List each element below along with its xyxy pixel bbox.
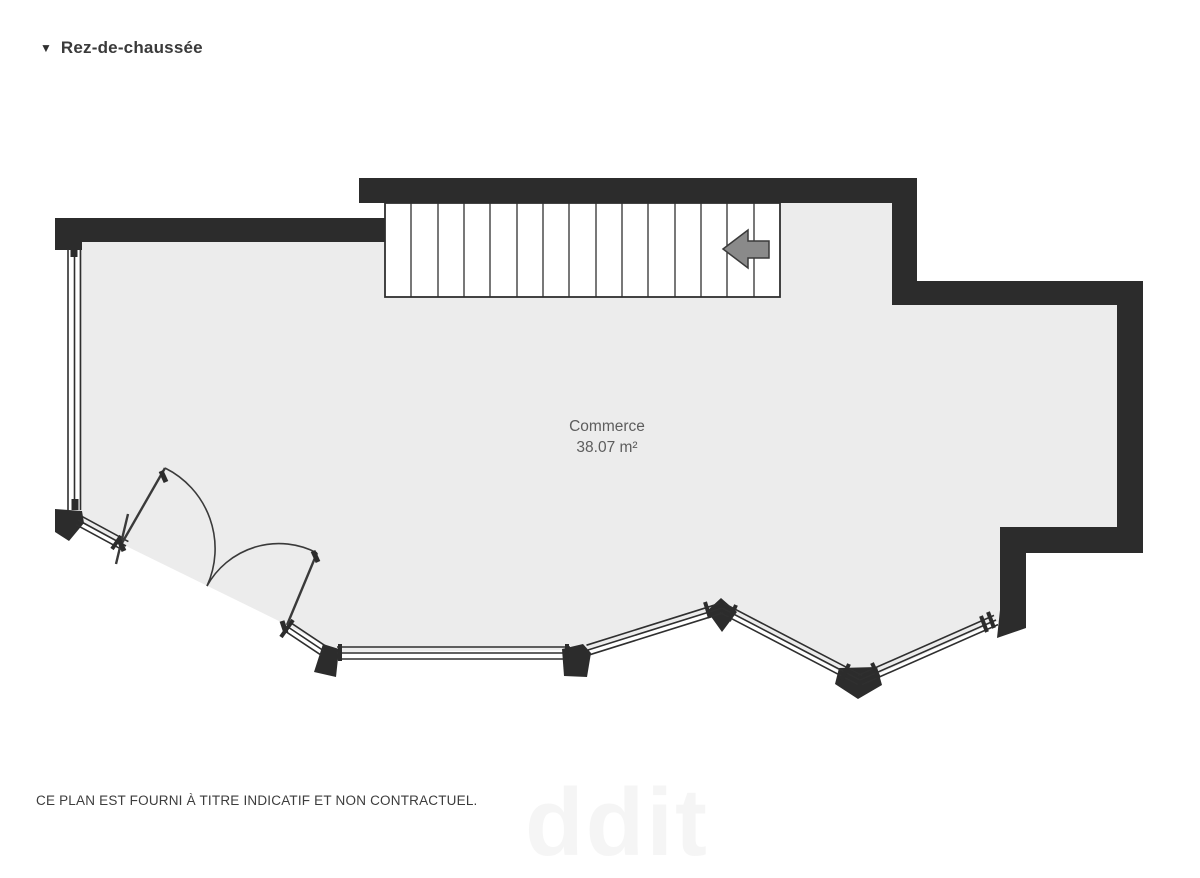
wall-post [314, 644, 339, 677]
room-area: 38.07 m² [569, 437, 645, 458]
wall-top-left [55, 218, 385, 242]
wall-top-left-jamb [55, 218, 82, 250]
staircase [385, 203, 780, 297]
wall-top [359, 178, 917, 203]
window-left [68, 249, 81, 510]
room-label: Commerce 38.07 m² [569, 416, 645, 458]
wall-lower-right [997, 527, 1026, 638]
wall-jut [892, 281, 1143, 305]
disclaimer-text: CE PLAN EST FOURNI À TITRE INDICATIF ET … [36, 793, 478, 808]
wall-post [55, 509, 84, 541]
room-name: Commerce [569, 416, 645, 437]
wall-right-outer [1117, 281, 1143, 553]
stair-outline [385, 203, 780, 297]
watermark: ddit [525, 768, 709, 878]
